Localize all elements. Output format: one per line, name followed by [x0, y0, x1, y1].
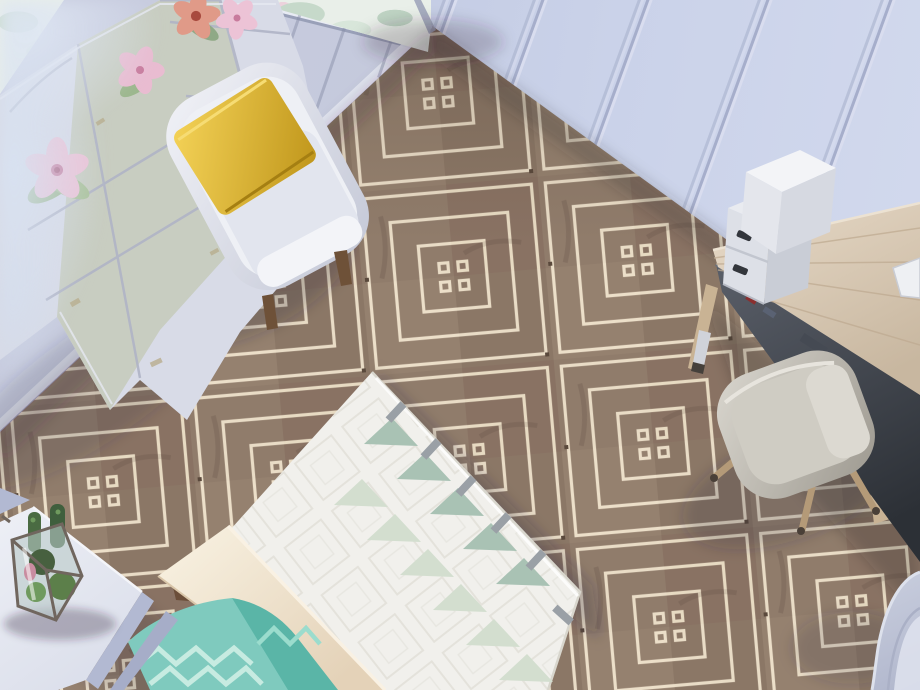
furniture-layer — [0, 0, 920, 690]
bed[interactable] — [128, 372, 580, 690]
sims-screenshot — [0, 0, 920, 690]
